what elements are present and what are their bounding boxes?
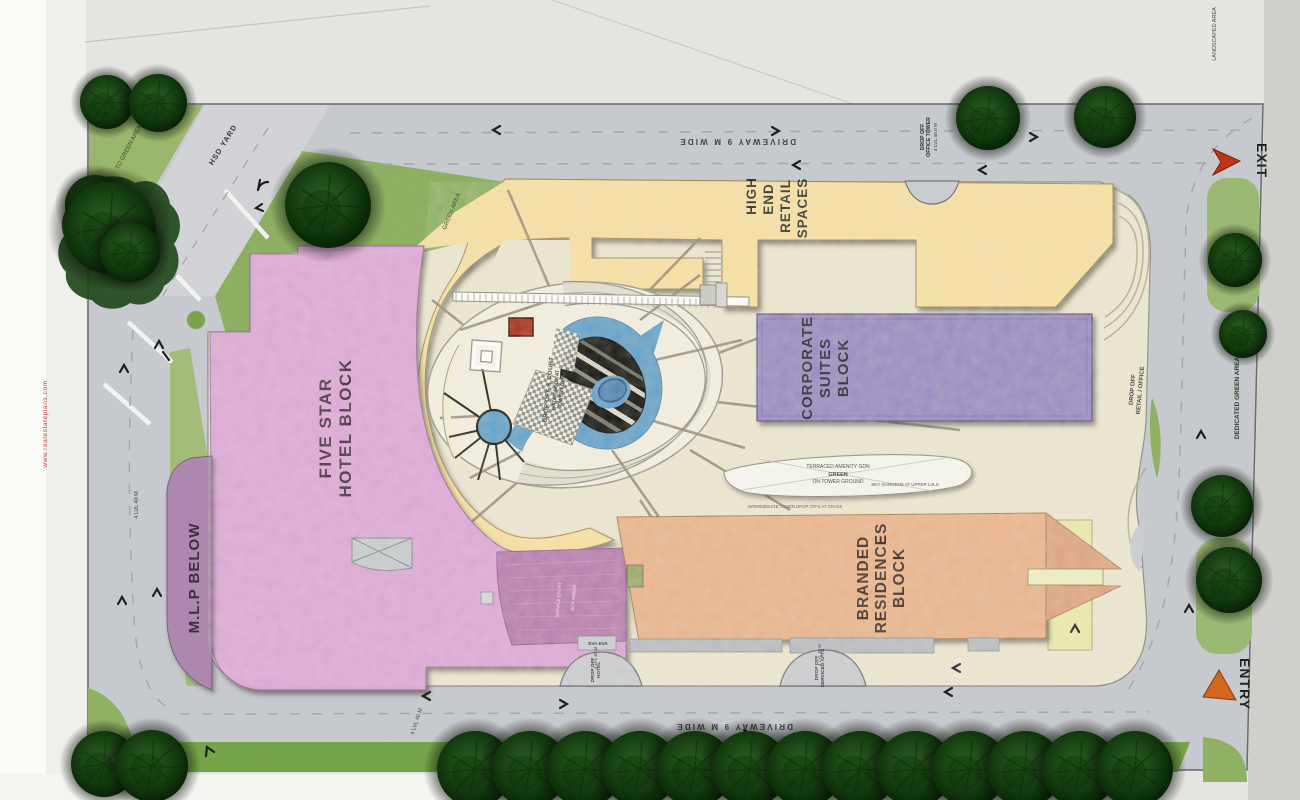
svg-text:OFFICE TOWER: OFFICE TOWER (926, 117, 932, 157)
svg-text:LANDSCAPED AREA: LANDSCAPED AREA (1212, 7, 1218, 61)
svg-text:4 LVL 40 M: 4 LVL 40 M (134, 491, 140, 519)
svg-text:www.realestateplans.com: www.realestateplans.com (42, 380, 49, 469)
svg-text:EXIT: EXIT (1254, 143, 1270, 178)
svg-text:4 LVL 40.0 M: 4 LVL 40.0 M (933, 123, 939, 151)
svg-text:M.L.P BELOW: M.L.P BELOW (186, 523, 203, 634)
svg-text:DRIVEWAY 9 M WIDE: DRIVEWAY 9 M WIDE (678, 137, 796, 146)
svg-text:ENTRY: ENTRY (1237, 658, 1253, 710)
svg-text:DEDICATED GREEN AREA: DEDICATED GREEN AREA (1234, 357, 1241, 440)
